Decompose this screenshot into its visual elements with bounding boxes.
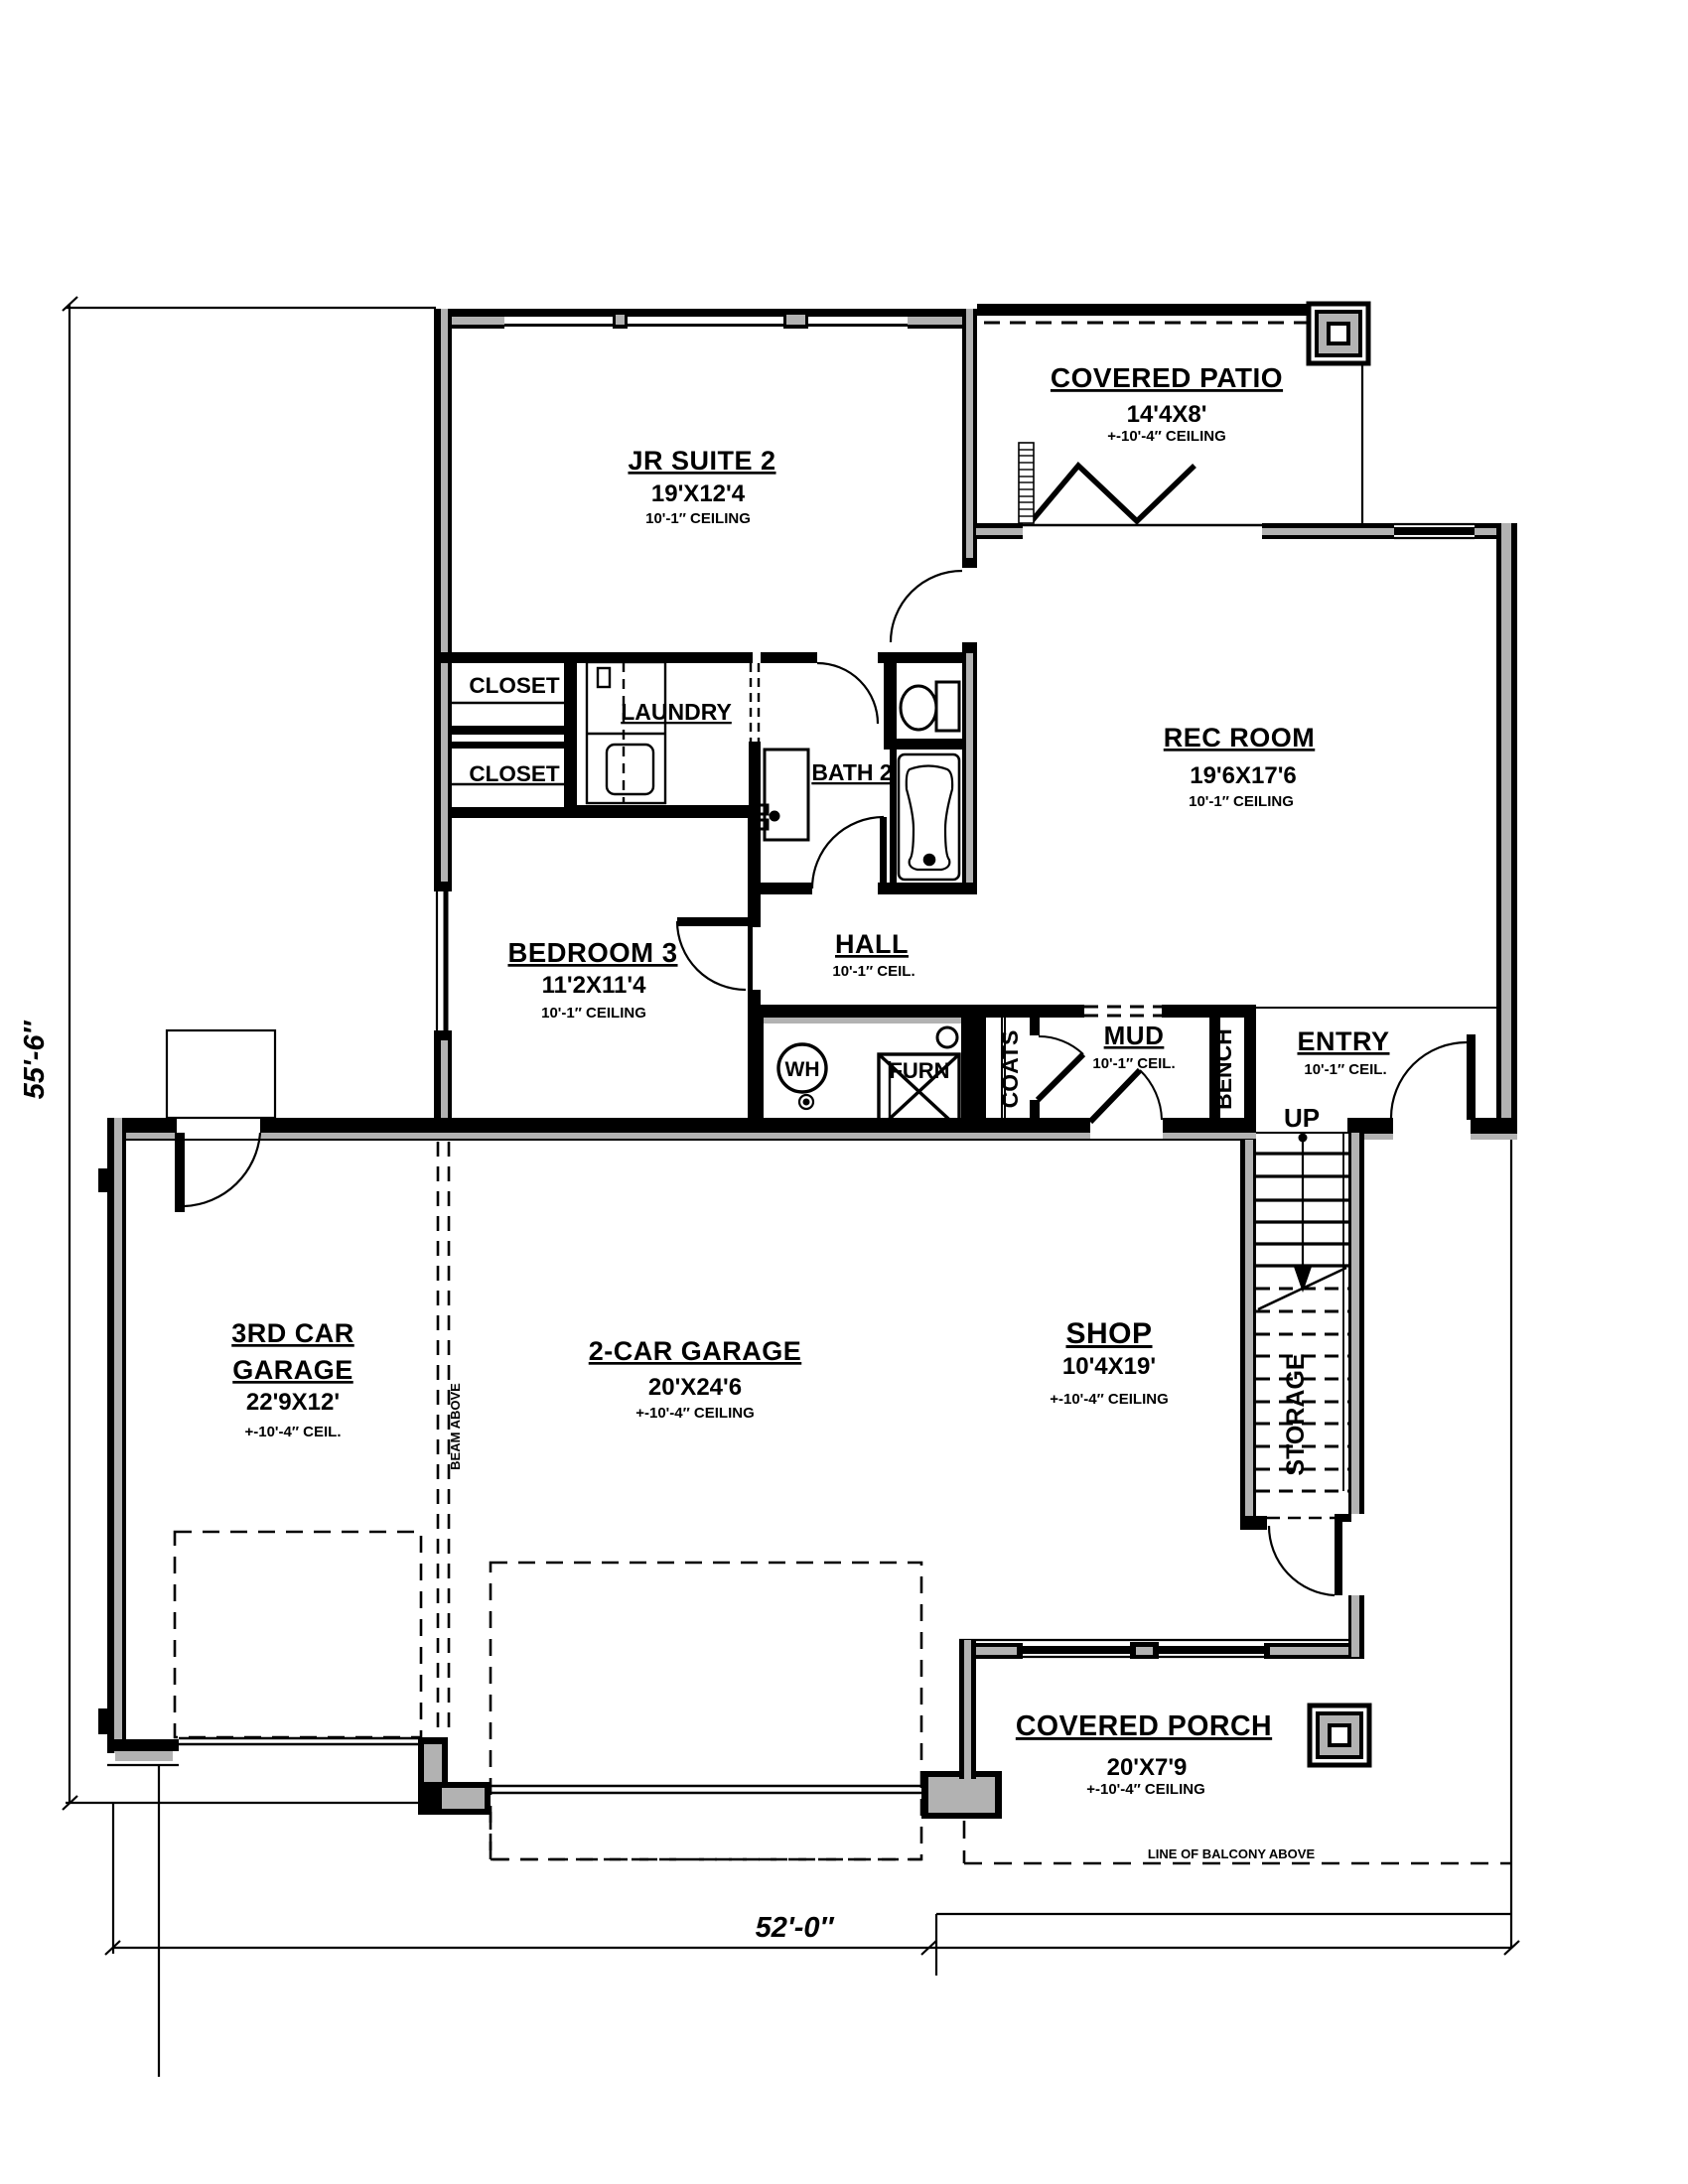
svg-text:HALL: HALL: [835, 929, 909, 959]
svg-text:COVERED PORCH: COVERED PORCH: [1016, 1710, 1272, 1742]
svg-text:JR SUITE 2: JR SUITE 2: [628, 446, 775, 476]
svg-text:STORAGE: STORAGE: [1282, 1353, 1310, 1475]
svg-text:52'-0″: 52'-0″: [756, 1912, 835, 1944]
svg-text:GARAGE: GARAGE: [232, 1355, 353, 1385]
svg-text:COVERED PATIO: COVERED PATIO: [1051, 362, 1283, 393]
svg-text:2-CAR GARAGE: 2-CAR GARAGE: [589, 1336, 802, 1366]
svg-text:+-10'-4″ CEILING: +-10'-4″ CEILING: [635, 1405, 755, 1422]
svg-text:14'4X8': 14'4X8': [1127, 401, 1207, 428]
svg-text:10'-1″ CEILING: 10'-1″ CEILING: [645, 510, 751, 527]
svg-text:REC ROOM: REC ROOM: [1164, 723, 1316, 752]
svg-text:LAUNDRY: LAUNDRY: [621, 699, 732, 725]
svg-text:BENCH: BENCH: [1210, 1028, 1236, 1110]
svg-text:10'4X19': 10'4X19': [1062, 1353, 1156, 1380]
svg-text:FURN: FURN: [889, 1058, 949, 1083]
svg-text:20'X7'9: 20'X7'9: [1107, 1754, 1188, 1781]
svg-text:LINE OF BALCONY ABOVE: LINE OF BALCONY ABOVE: [1148, 1846, 1316, 1861]
svg-text:19'6X17'6: 19'6X17'6: [1190, 762, 1297, 789]
svg-text:20'X24'6: 20'X24'6: [648, 1374, 742, 1401]
svg-text:10'-1″ CEIL.: 10'-1″ CEIL.: [1092, 1055, 1175, 1072]
svg-text:10'-1″ CEILING: 10'-1″ CEILING: [541, 1005, 646, 1022]
svg-text:10'-1″ CEILING: 10'-1″ CEILING: [1189, 793, 1294, 810]
svg-text:19'X12'4: 19'X12'4: [651, 480, 746, 507]
svg-text:BATH 2: BATH 2: [811, 759, 892, 785]
svg-text:22'9X12': 22'9X12': [246, 1389, 340, 1416]
svg-text:11'2X11'4: 11'2X11'4: [542, 972, 647, 999]
svg-text:55'-6″: 55'-6″: [19, 1020, 51, 1099]
svg-text:CLOSET: CLOSET: [469, 761, 560, 786]
svg-text:WH: WH: [785, 1058, 820, 1081]
svg-text:BEAM ABOVE: BEAM ABOVE: [448, 1383, 463, 1470]
svg-text:10'-1″ CEIL.: 10'-1″ CEIL.: [832, 963, 914, 980]
svg-text:BEDROOM 3: BEDROOM 3: [507, 937, 677, 968]
svg-text:SHOP: SHOP: [1065, 1317, 1152, 1350]
svg-text:+-10'-4″ CEILING: +-10'-4″ CEILING: [1086, 1781, 1205, 1798]
svg-text:+-10'-4″ CEILING: +-10'-4″ CEILING: [1107, 428, 1226, 445]
svg-text:ENTRY: ENTRY: [1297, 1026, 1389, 1056]
svg-text:+-10'-4″ CEILING: +-10'-4″ CEILING: [1050, 1391, 1169, 1408]
svg-text:3RD CAR: 3RD CAR: [231, 1318, 354, 1348]
svg-text:+-10'-4″ CEIL.: +-10'-4″ CEIL.: [244, 1424, 341, 1440]
svg-text:MUD: MUD: [1104, 1021, 1165, 1050]
svg-text:COATS: COATS: [997, 1030, 1023, 1109]
svg-text:UP: UP: [1284, 1103, 1320, 1133]
svg-text:CLOSET: CLOSET: [469, 673, 560, 698]
svg-text:10'-1″ CEIL.: 10'-1″ CEIL.: [1304, 1061, 1386, 1078]
